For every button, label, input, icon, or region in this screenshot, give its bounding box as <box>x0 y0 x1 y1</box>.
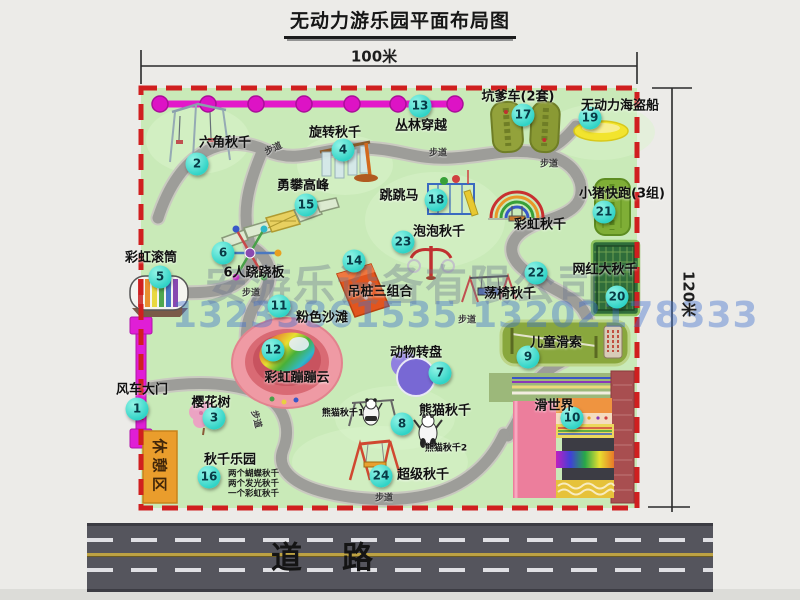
width-dimension-label: 100米 <box>351 46 397 67</box>
item-12-badge: 12 <box>262 339 285 362</box>
item-5-badge: 5 <box>149 266 172 289</box>
item-15-badge: 15 <box>295 194 318 217</box>
item-21-label: 小猪快跑(3组) <box>579 183 665 202</box>
item-20-badge: 20 <box>606 286 629 309</box>
item-12-label: 彩虹蹦蹦云 <box>264 367 329 386</box>
footpath-label-7: 步道 <box>375 491 393 504</box>
item-6-label: 6人跷跷板 <box>223 262 284 281</box>
item-18-label: 跳跳马 <box>379 185 418 204</box>
item-23-badge: 23 <box>392 231 415 254</box>
item-1-label: 风车大门 <box>116 379 168 398</box>
item-4-badge: 4 <box>332 139 355 162</box>
item-9-label: 儿童滑索 <box>530 332 582 351</box>
item-11-badge: 11 <box>268 295 291 318</box>
item-2-label: 六角秋千 <box>199 132 251 151</box>
item-3-label: 樱花树 <box>191 392 230 411</box>
item-19-label: 无动力海盗船 <box>581 95 659 114</box>
item-18-badge: 18 <box>425 189 448 212</box>
rest-area-label: 休憩区 <box>150 438 171 495</box>
item-17-badge: 17 <box>512 104 535 127</box>
panda-swing-1-label: 熊猫秋千1 <box>322 406 364 419</box>
item-8-badge: 8 <box>391 413 414 436</box>
panda-swing-2-label: 熊猫秋千2 <box>425 441 467 454</box>
footpath-label-3: 步道 <box>540 157 558 170</box>
item-7-badge: 7 <box>429 362 452 385</box>
item-16-label: 秋千乐园 <box>204 449 256 468</box>
item-4-label: 旋转秋千 <box>309 122 361 141</box>
page-title: 无动力游乐园平面布局图 <box>284 6 516 39</box>
title-bar: 无动力游乐园平面布局图 <box>0 6 800 39</box>
item-16-badge: 16 <box>198 466 221 489</box>
item-24-badge: 24 <box>370 465 393 488</box>
item-14-badge: 14 <box>343 250 366 273</box>
item-2-badge: 2 <box>186 153 209 176</box>
road-label: 道路 <box>271 533 413 578</box>
item-1-badge: 1 <box>126 398 149 421</box>
item-17-label: 坑爹车(2套) <box>482 86 555 105</box>
item-15-label: 勇攀高峰 <box>277 175 329 194</box>
footpath-label-2: 步道 <box>429 146 447 159</box>
item-13-label: 丛林穿越 <box>395 115 447 134</box>
item-22-badge: 22 <box>525 262 548 285</box>
item-7-label: 动物转盘 <box>390 342 442 361</box>
footpath-label-5: 步道 <box>458 313 476 326</box>
item-5-label: 彩虹滚筒 <box>125 247 177 266</box>
item-23-label: 泡泡秋千 <box>413 221 465 240</box>
swing-park-note-3: 一个彩虹秋千 <box>228 487 279 499</box>
item-14-label: 吊桩三组合 <box>347 281 412 300</box>
item-11-label: 粉色沙滩 <box>296 307 348 326</box>
item-21-badge: 21 <box>593 201 616 224</box>
road-strip: 道路 <box>87 523 713 592</box>
height-dimension-label: 120米 <box>679 271 700 317</box>
playground-plan-screenshot: { "title": "无动力游乐园平面布局图", "dimensions": … <box>0 0 800 600</box>
item-10-label: 滑世界 <box>534 395 573 414</box>
item-20-label: 网红大秋千 <box>572 259 637 278</box>
footpath-label-4: 步道 <box>242 286 260 299</box>
rainbow-swing-label: 彩虹秋千 <box>514 214 566 233</box>
item-24-label: 超级秋千 <box>397 464 449 483</box>
item-8-label: 熊猫秋千 <box>419 400 471 419</box>
item-22-label: 荡椅秋千 <box>484 283 536 302</box>
